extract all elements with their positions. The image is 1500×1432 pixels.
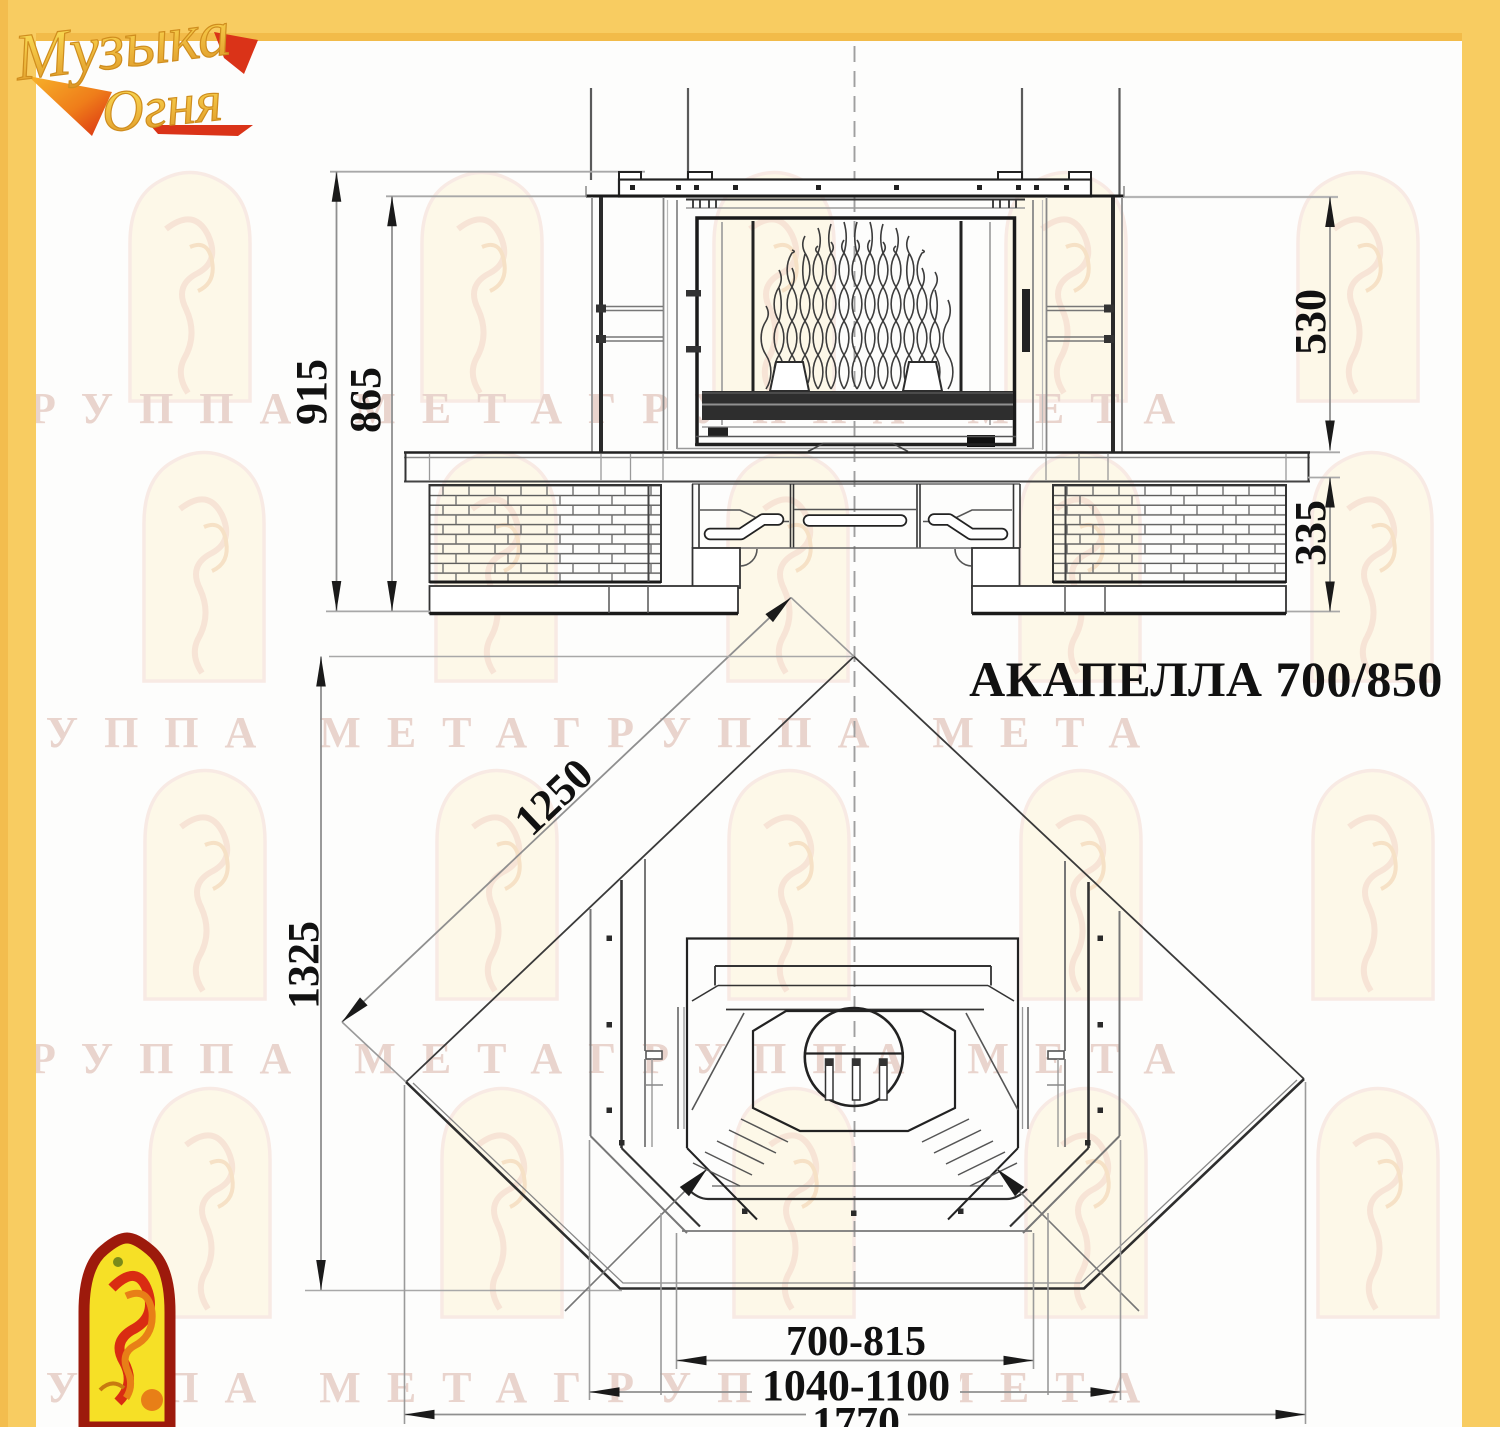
svg-text:530: 530 — [1286, 289, 1335, 355]
svg-text:ГРУППА МЕТАГРУППА МЕТА: ГРУППА МЕТАГРУППА МЕТА — [0, 708, 1166, 757]
svg-text:1325: 1325 — [279, 921, 328, 1009]
svg-text:915: 915 — [287, 359, 336, 425]
svg-text:700-815: 700-815 — [786, 1319, 926, 1365]
svg-text:1770: 1770 — [812, 1398, 900, 1427]
svg-text:ГРУППА МЕТАГРУППА МЕТА: ГРУППА МЕТАГРУППА МЕТА — [0, 1034, 1201, 1083]
svg-text:Огня: Огня — [99, 68, 225, 145]
svg-text:АКАПЕЛЛА 700/850: АКАПЕЛЛА 700/850 — [969, 651, 1443, 707]
svg-text:335: 335 — [1286, 500, 1335, 566]
svg-text:865: 865 — [341, 367, 390, 433]
